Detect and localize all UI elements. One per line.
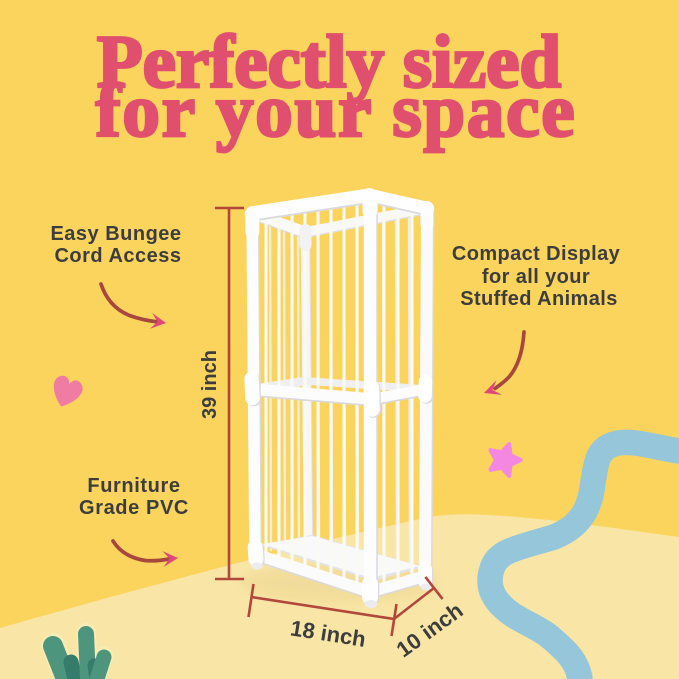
svg-text:Grade PVC: Grade PVC <box>79 497 189 519</box>
svg-text:for your space: for your space <box>96 70 577 153</box>
svg-text:Stuffed Animals: Stuffed Animals <box>460 288 618 310</box>
svg-text:for all your: for all your <box>482 266 590 288</box>
svg-text:Cord Access: Cord Access <box>54 245 181 267</box>
svg-text:Easy Bungee: Easy Bungee <box>50 223 181 245</box>
svg-text:Furniture: Furniture <box>87 475 180 497</box>
svg-text:Compact Display: Compact Display <box>452 243 621 265</box>
svg-text:39 inch: 39 inch <box>199 350 221 419</box>
